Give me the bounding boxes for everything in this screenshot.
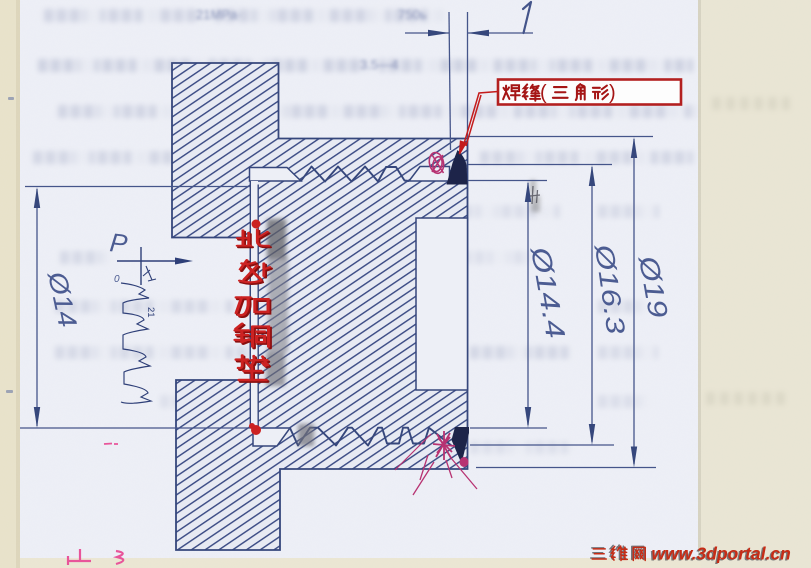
svg-text:www.3dportal.cn: www.3dportal.cn bbox=[652, 544, 791, 564]
svg-text:21: 21 bbox=[145, 307, 156, 318]
svg-text:): ) bbox=[609, 82, 616, 104]
svg-text:(: ( bbox=[540, 82, 547, 104]
svg-text:0: 0 bbox=[114, 274, 120, 285]
